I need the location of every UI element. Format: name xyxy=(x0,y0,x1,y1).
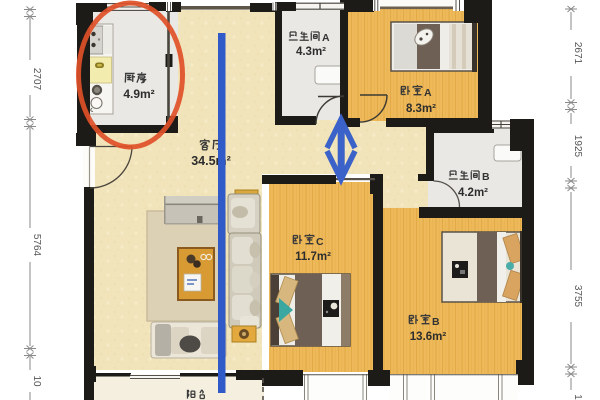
svg-text:11.7m²: 11.7m² xyxy=(295,251,331,263)
svg-text:A: A xyxy=(424,87,432,99)
svg-text:4.2m²: 4.2m² xyxy=(458,187,488,199)
svg-text:B: B xyxy=(482,171,490,183)
svg-text:A: A xyxy=(322,32,330,44)
svg-text:B: B xyxy=(432,316,440,328)
svg-text:2671: 2671 xyxy=(572,42,583,65)
svg-text:5764: 5764 xyxy=(31,234,42,257)
svg-text:4.3m²: 4.3m² xyxy=(296,46,326,58)
svg-text:1: 1 xyxy=(572,394,583,400)
svg-text:8.3m²: 8.3m² xyxy=(406,103,436,115)
svg-text:3755: 3755 xyxy=(572,285,583,308)
svg-text:13.6m²: 13.6m² xyxy=(410,331,447,343)
svg-text:4.9m²: 4.9m² xyxy=(123,87,154,101)
svg-text:10: 10 xyxy=(31,375,42,387)
svg-text:2707: 2707 xyxy=(31,68,42,91)
svg-text:1925: 1925 xyxy=(572,135,583,158)
svg-text:C: C xyxy=(316,236,324,248)
